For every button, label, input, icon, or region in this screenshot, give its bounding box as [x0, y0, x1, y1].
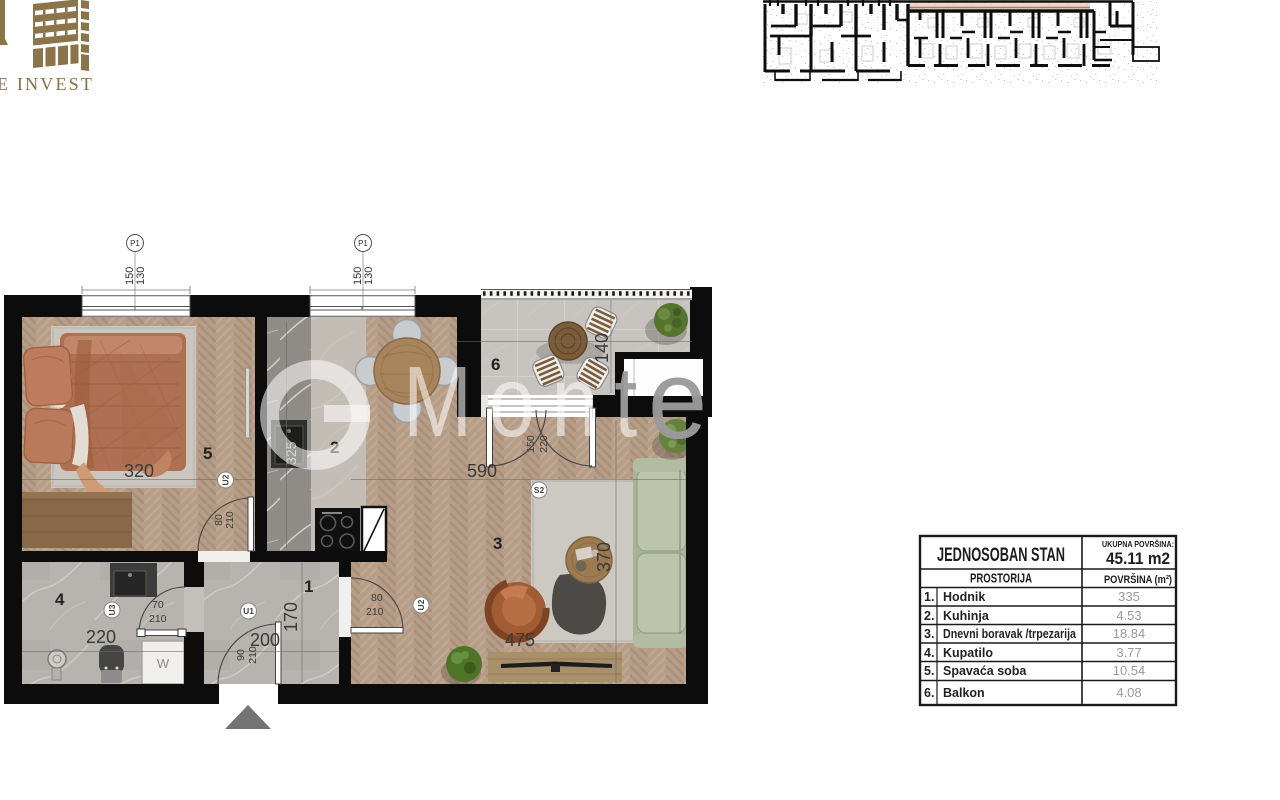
svg-text:18.84: 18.84 [1113, 626, 1146, 641]
svg-text:210: 210 [224, 511, 236, 529]
svg-text:UKUPNA POVRŠINA:: UKUPNA POVRŠINA: [1102, 538, 1174, 549]
svg-text:U1: U1 [243, 606, 254, 616]
svg-text:3.: 3. [924, 627, 934, 641]
svg-text:W: W [157, 656, 170, 671]
svg-text:2.: 2. [924, 609, 934, 623]
svg-text:80: 80 [371, 592, 383, 604]
svg-text:4.: 4. [924, 646, 934, 660]
svg-text:590: 590 [467, 461, 497, 481]
svg-text:4.08: 4.08 [1116, 685, 1141, 700]
svg-text:4: 4 [55, 590, 65, 609]
svg-text:320: 320 [124, 461, 154, 481]
svg-text:P1: P1 [358, 239, 368, 248]
svg-text:170: 170 [281, 602, 301, 632]
svg-text:5.: 5. [924, 664, 934, 678]
svg-text:U3: U3 [107, 604, 117, 615]
svg-text:Balkon: Balkon [943, 686, 985, 700]
svg-text:475: 475 [505, 630, 535, 650]
svg-text:370: 370 [594, 542, 614, 572]
svg-text:45.11 m2: 45.11 m2 [1106, 550, 1170, 568]
svg-text:Kuhinja: Kuhinja [943, 609, 990, 623]
svg-text:Kupatilo: Kupatilo [943, 646, 993, 660]
svg-text:Spavaća soba: Spavaća soba [943, 664, 1027, 678]
svg-text:1.: 1. [924, 590, 934, 604]
svg-text:1: 1 [304, 577, 313, 596]
svg-text:6.: 6. [924, 686, 934, 700]
svg-text:130: 130 [363, 267, 375, 285]
svg-text:JEDNOSOBAN STAN: JEDNOSOBAN STAN [937, 545, 1065, 566]
svg-text:P1: P1 [130, 239, 140, 248]
svg-text:3.77: 3.77 [1116, 645, 1141, 660]
svg-text:PROSTORIJA: PROSTORIJA [970, 572, 1032, 586]
svg-text:E INVEST: E INVEST [0, 74, 94, 94]
svg-text:335: 335 [1118, 589, 1140, 604]
svg-text:220: 220 [86, 627, 116, 647]
svg-text:Hodnik: Hodnik [943, 590, 985, 604]
svg-text:210: 210 [366, 606, 384, 618]
svg-text:U2: U2 [221, 474, 231, 485]
svg-text:10.54: 10.54 [1113, 663, 1146, 678]
svg-text:U2: U2 [416, 599, 426, 610]
svg-text:130: 130 [135, 267, 147, 285]
svg-text:3: 3 [493, 534, 502, 553]
svg-text:POVRŠINA (m²): POVRŠINA (m²) [1104, 573, 1172, 586]
svg-text:70: 70 [152, 599, 164, 611]
svg-text:Dnevni boravak /trpezarija: Dnevni boravak /trpezarija [943, 627, 1077, 641]
svg-text:90: 90 [235, 649, 247, 661]
svg-text:e: e [648, 338, 707, 463]
svg-text:5: 5 [203, 444, 212, 463]
svg-text:S2: S2 [534, 485, 545, 495]
svg-text:210: 210 [247, 646, 259, 664]
svg-text:4.53: 4.53 [1116, 608, 1141, 623]
svg-text:210: 210 [149, 613, 167, 625]
